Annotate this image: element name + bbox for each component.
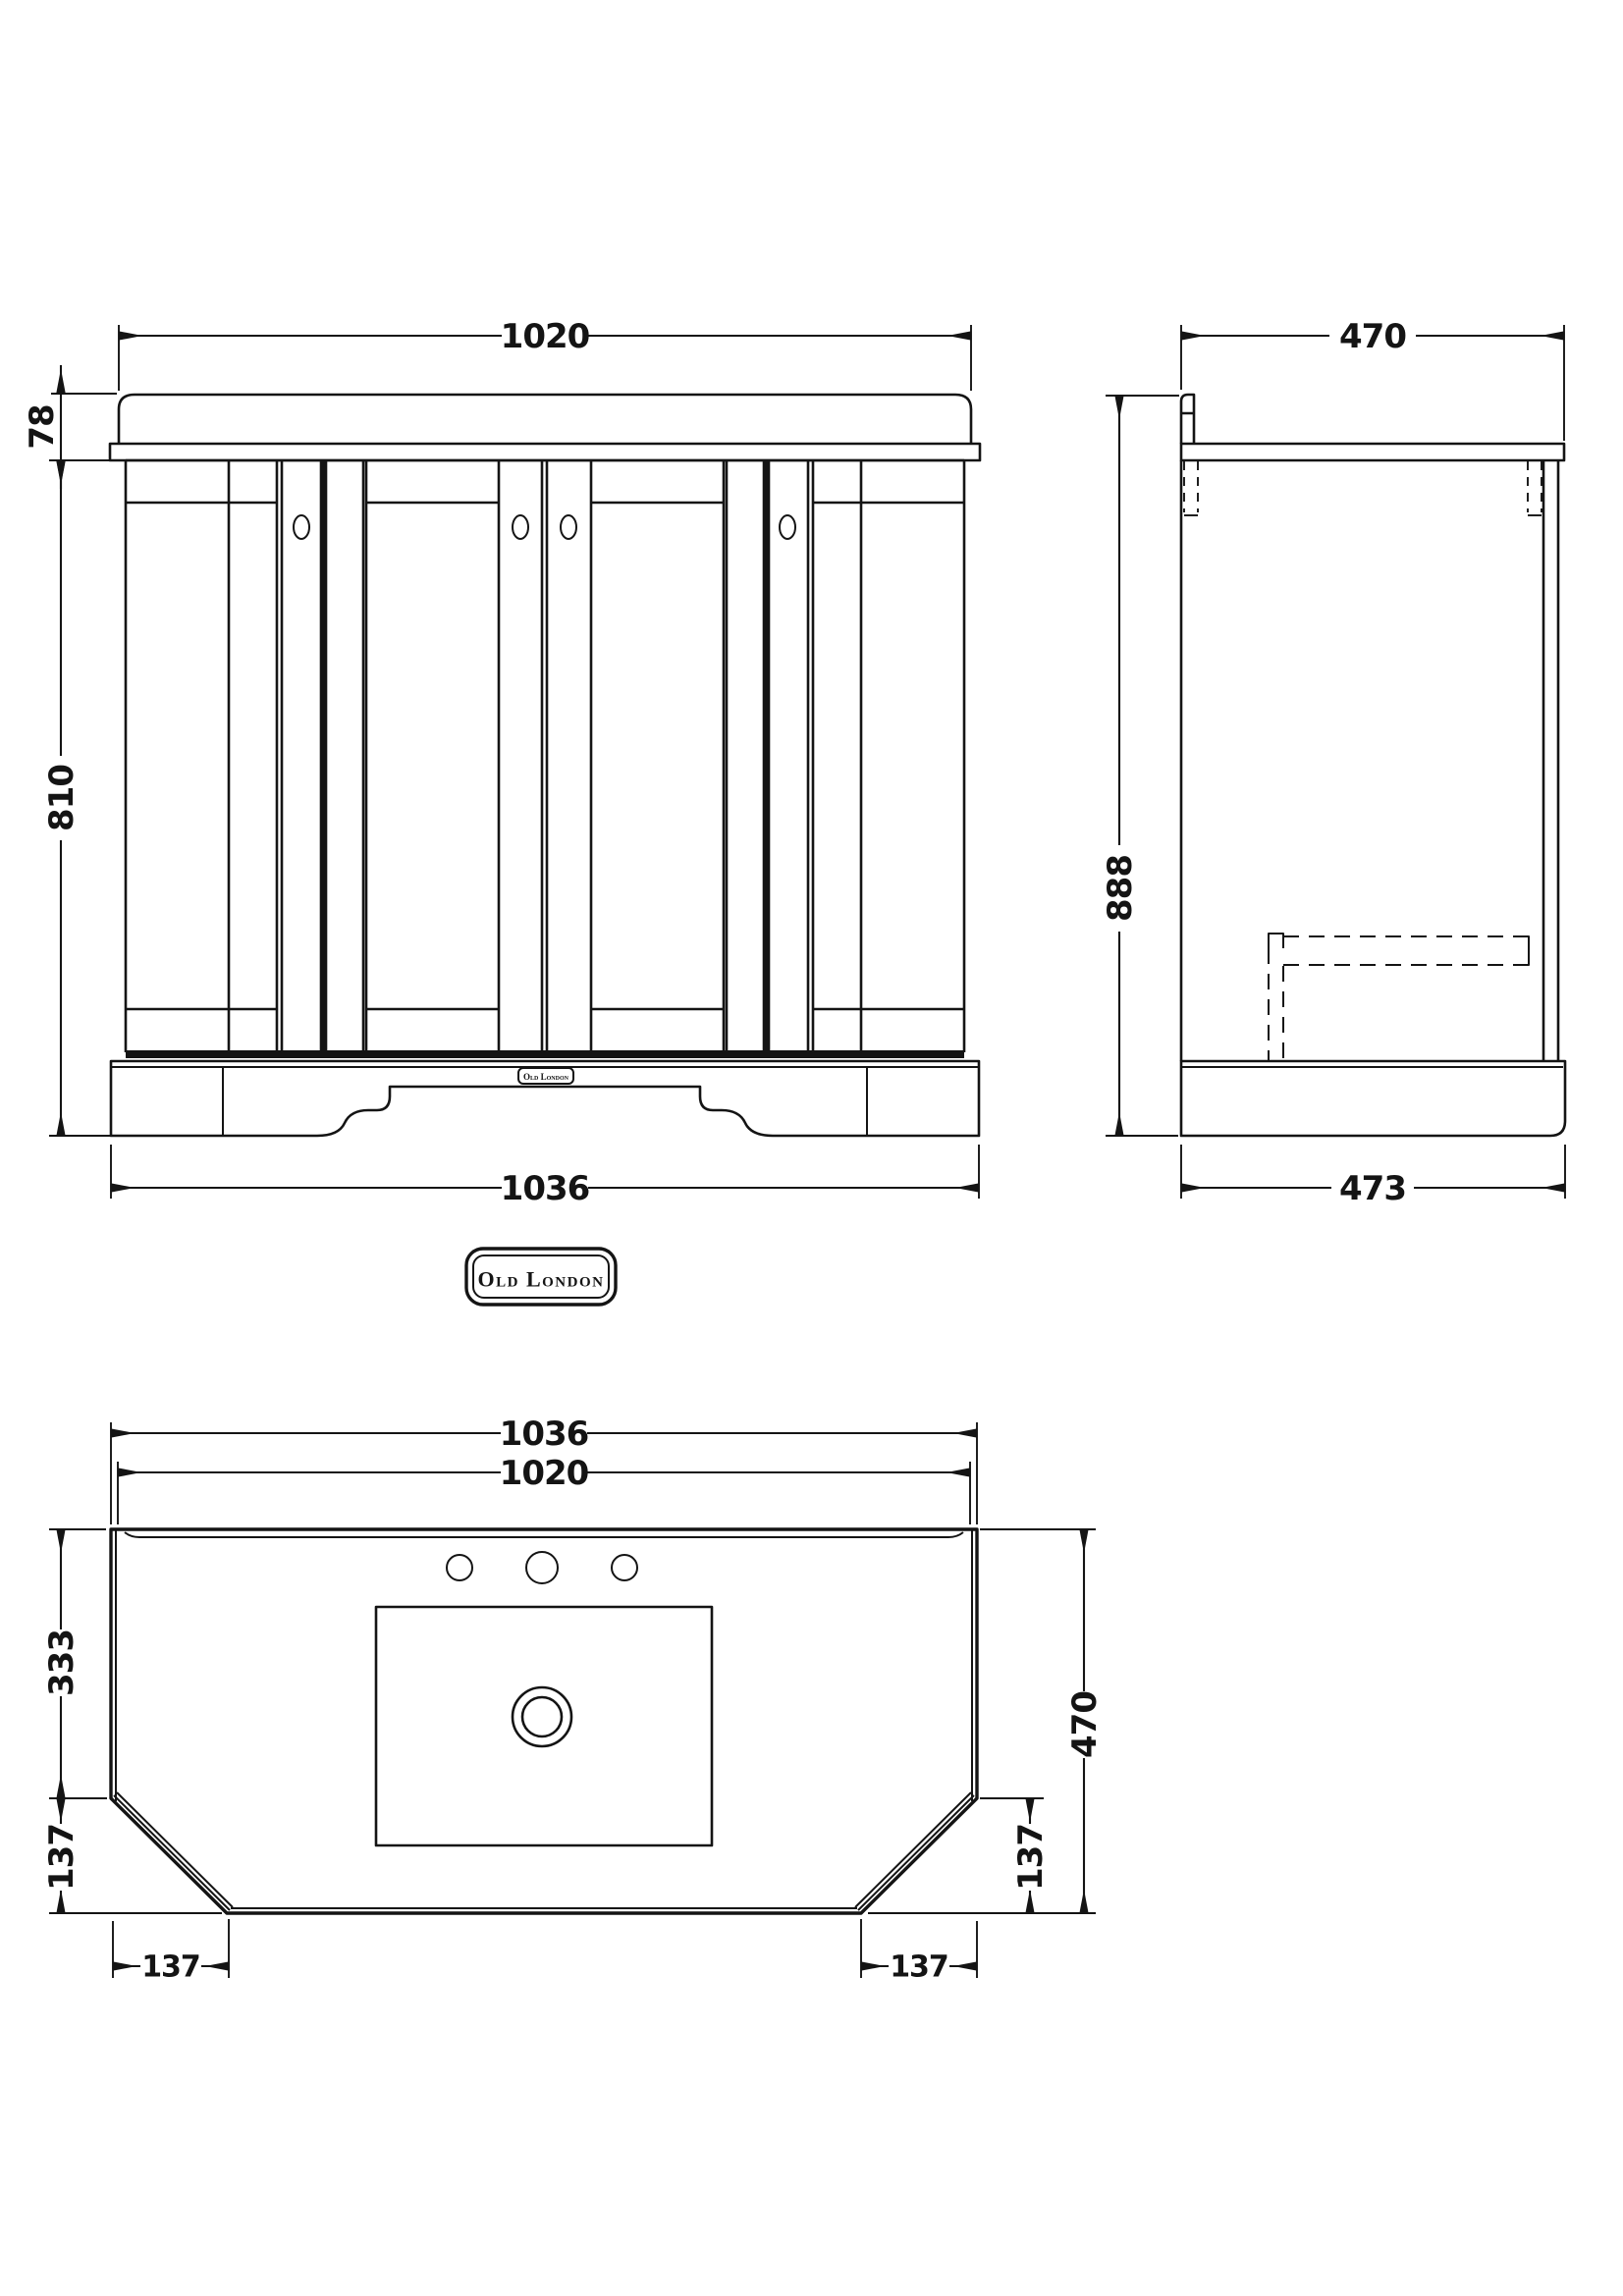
dim-front-top-width: 1020 [119,317,971,391]
plan-basin [376,1607,712,1845]
dim-plan-chamfer-depth-left: 137 [42,1798,222,1913]
dim-front-cabinet-height: 810 [42,460,110,1136]
plan-back-edge-line [125,1532,963,1537]
dim-front-base-width: 1036 [111,1145,979,1208]
dim-plan-chamfer-depth-right: 137 [980,1798,1051,1913]
door-handle [780,515,795,539]
front-door-rails [126,503,964,1009]
dim-label: 888 [1101,855,1140,922]
dim-label: 1036 [500,1415,589,1454]
dim-label: 137 [1011,1824,1051,1891]
side-plinth [1181,1061,1565,1136]
drawing-sheet: Old London 1020 78 810 [0,0,1623,2296]
plan-outline [111,1529,977,1913]
dim-label: 1020 [500,1454,589,1493]
front-worktop-top [119,395,971,444]
dim-label: 333 [42,1629,81,1696]
dim-plan-chamfer-width-right: 137 [861,1919,977,1985]
side-hidden-shelf-caps [1269,934,1529,965]
dim-label: 473 [1339,1169,1406,1208]
dim-label: 1036 [501,1169,590,1208]
plan-view: 1036 1020 333 137 [42,1415,1105,1985]
dim-plan-inner-width: 1020 [118,1454,970,1524]
side-fixing-bracket-right [1528,461,1542,512]
side-upstand [1181,395,1194,444]
dim-plan-chamfer-width-left: 137 [113,1919,229,1985]
front-door-gap-left [321,460,326,1052]
front-door-gap-right [764,460,769,1052]
front-base-strip [126,1050,964,1058]
front-plinth-badge-text: Old London [523,1072,569,1082]
plan-waste-inner [522,1697,562,1736]
dim-label: 470 [1339,317,1406,356]
side-worktop [1181,444,1564,460]
door-handle [513,515,528,539]
dim-front-worktop-height: 78 [23,365,117,489]
front-cabinet-verticals [126,460,964,1052]
dim-label: 1020 [501,317,590,356]
plan-edge-inner-lines [114,1529,974,1910]
side-view: 470 888 473 [1101,317,1565,1208]
front-worktop-lip [110,444,980,460]
side-fixing-bracket-left [1184,461,1198,512]
brand-badge-text: Old London [478,1267,605,1292]
side-hidden-shelf [1269,936,1518,1061]
dim-label: 137 [42,1824,81,1891]
dim-ext-line [868,1529,1096,1913]
dim-plan-total-depth: 470 [868,1529,1105,1913]
dim-label: 78 [23,404,62,449]
door-handle [561,515,576,539]
dim-label: 137 [141,1950,200,1985]
dim-side-total-height: 888 [1101,396,1179,1136]
side-front-edge [1543,460,1558,1061]
brand-badge: Old London [466,1249,616,1305]
plan-tap-hole-middle [526,1552,558,1583]
technical-drawing: Old London 1020 78 810 [0,0,1623,2296]
plan-tap-hole-left [447,1555,472,1580]
dim-side-base-depth: 473 [1181,1145,1565,1208]
dim-plan-back-depth: 333 [42,1529,107,1798]
dim-side-top-depth: 470 [1181,317,1564,441]
dim-ext-line [1106,396,1179,1136]
plan-tap-hole-right [612,1555,637,1580]
dim-label: 137 [890,1950,948,1985]
dim-label: 470 [1065,1691,1105,1758]
dim-label: 810 [42,765,81,831]
front-view: Old London 1020 78 810 [23,317,980,1208]
door-handle [294,515,309,539]
